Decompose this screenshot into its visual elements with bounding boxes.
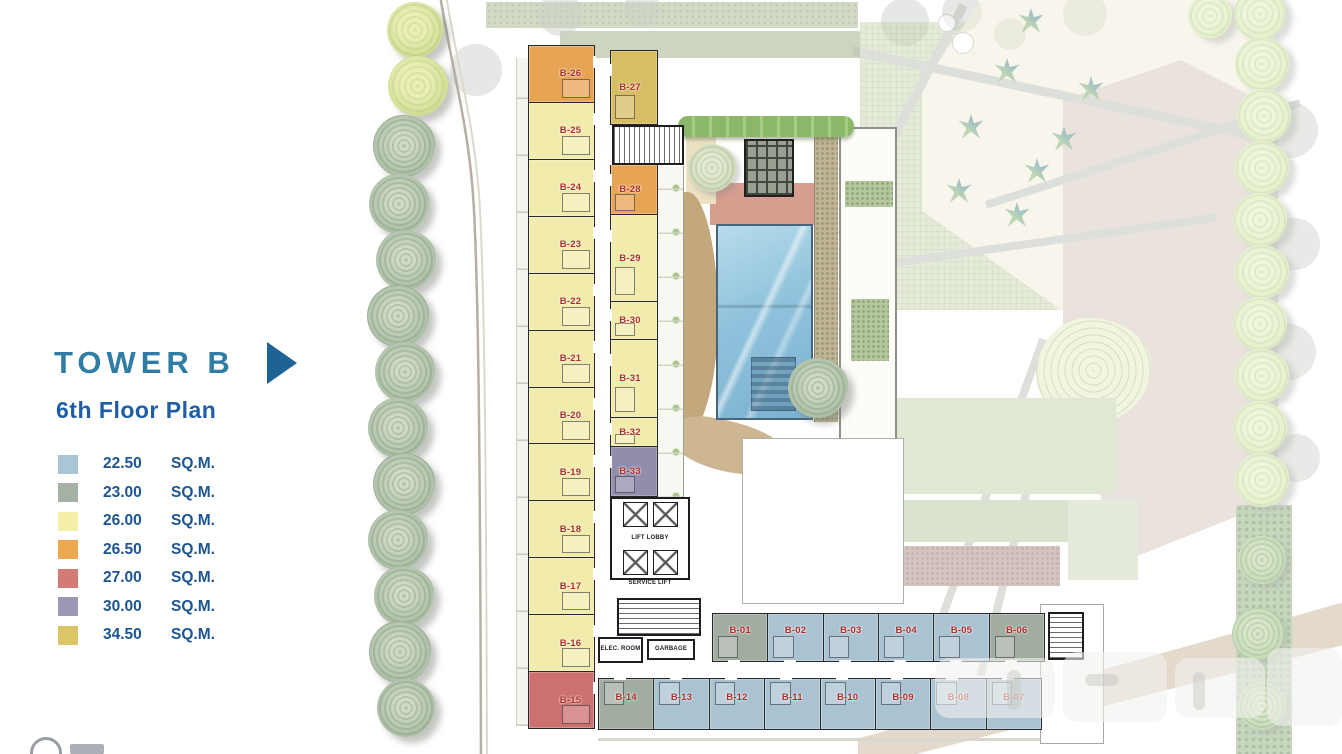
legend-area-value: 22.50: [103, 455, 159, 473]
unit-label: B-17: [560, 581, 581, 592]
legend-swatch-icon: [58, 540, 78, 559]
legend-area-value: 34.50: [103, 626, 159, 644]
unit-B-27: B-27: [610, 50, 658, 125]
legend-swatch-icon: [58, 483, 78, 502]
lift-icon: [623, 550, 648, 575]
unit-label: B-22: [560, 296, 581, 307]
main-stairwell: [617, 598, 701, 636]
unit-label: B-06: [1006, 625, 1027, 636]
unit-label: B-26: [560, 68, 581, 79]
unit-B-33: B-33: [610, 447, 658, 497]
lift-lobby: LIFT LOBBY: [610, 497, 690, 580]
hedge-patch: [851, 299, 889, 361]
unit-label: B-14: [615, 692, 636, 703]
legend-swatch-icon: [58, 626, 78, 645]
unit-B-17: B-17: [528, 558, 595, 615]
unit-label: B-24: [560, 182, 581, 193]
unit-label: B-10: [837, 692, 858, 703]
unit-label: B-19: [560, 467, 581, 478]
legend-swatch-icon: [58, 512, 78, 531]
unit-label: B-13: [671, 692, 692, 703]
south-lower-row: B-14B-13B-12B-11B-10B-09B-08B-07: [598, 678, 1042, 730]
south-stairwell: [1048, 612, 1084, 660]
legend-area-unit: SQ.M.: [171, 484, 215, 502]
unit-label: B-18: [560, 524, 581, 535]
legend-item: 23.00SQ.M.: [58, 483, 304, 503]
east-unit-column: B-27B-28B-29B-30B-31B-32B-33: [610, 50, 658, 497]
unit-B-06: B-06: [990, 613, 1045, 662]
unit-B-04: B-04: [879, 613, 934, 662]
unit-B-14: B-14: [598, 678, 654, 730]
legend-item: 22.50SQ.M.: [58, 454, 304, 474]
unit-B-15: B-15: [528, 672, 595, 729]
unit-label: B-11: [782, 692, 803, 703]
unit-label: B-30: [619, 315, 640, 326]
hedge-row: [678, 116, 854, 137]
unit-B-24: B-24: [528, 160, 595, 217]
lift-icon: [653, 550, 678, 575]
legend-item: 34.50SQ.M.: [58, 625, 304, 645]
service-lift-label: SERVICE LIFT: [610, 580, 690, 587]
legend-swatch-icon: [58, 569, 78, 588]
unit-label: B-20: [560, 410, 581, 421]
legend-item: 26.00SQ.M.: [58, 511, 304, 531]
legend-swatch-icon: [58, 597, 78, 616]
unit-B-32: B-32: [610, 418, 658, 447]
unit-label: B-04: [895, 625, 916, 636]
unit-label: B-12: [726, 692, 747, 703]
unit-label: B-09: [892, 692, 913, 703]
unit-label: B-25: [560, 125, 581, 136]
unit-label: B-29: [619, 253, 640, 264]
unit-B-07: B-07: [987, 678, 1042, 730]
legend-area-value: 23.00: [103, 484, 159, 502]
arrow-right-icon: [267, 342, 297, 384]
unit-label: B-01: [729, 625, 750, 636]
unit-B-03: B-03: [824, 613, 879, 662]
unit-B-31: B-31: [610, 340, 658, 418]
unit-B-02: B-02: [768, 613, 823, 662]
garbage-room-label: GARBAGE: [655, 646, 687, 653]
unit-label: B-27: [619, 82, 640, 93]
unit-B-21: B-21: [528, 331, 595, 388]
unit-label: B-21: [560, 353, 581, 364]
unit-label: B-03: [840, 625, 861, 636]
legend-item: 30.00SQ.M.: [58, 597, 304, 617]
unit-B-01: B-01: [712, 613, 768, 662]
unit-B-16: B-16: [528, 615, 595, 672]
unit-label: B-16: [560, 638, 581, 649]
terrace-outline: [742, 438, 904, 604]
legend-item: 27.00SQ.M.: [58, 568, 304, 588]
area-legend: 22.50SQ.M.23.00SQ.M.26.00SQ.M.26.50SQ.M.…: [54, 454, 304, 645]
legend-area-value: 26.50: [103, 541, 159, 559]
unit-B-10: B-10: [821, 678, 876, 730]
unit-B-08: B-08: [931, 678, 986, 730]
unit-B-05: B-05: [934, 613, 989, 662]
unit-label: B-08: [948, 692, 969, 703]
unit-B-19: B-19: [528, 444, 595, 501]
partial-logo-text: [70, 744, 104, 754]
legend-area-value: 27.00: [103, 569, 159, 587]
legend-area-unit: SQ.M.: [171, 512, 215, 530]
legend-area-unit: SQ.M.: [171, 541, 215, 559]
stairwell: [612, 125, 684, 165]
south-upper-row: B-01B-02B-03B-04B-05B-06: [712, 613, 1045, 662]
west-unit-column: B-26B-25B-24B-23B-22B-21B-20B-19B-18B-17…: [528, 45, 595, 729]
unit-B-11: B-11: [765, 678, 820, 730]
legend-panel: TOWER B 6th Floor Plan 22.50SQ.M.23.00SQ…: [54, 342, 304, 654]
unit-B-29: B-29: [610, 215, 658, 302]
legend-area-unit: SQ.M.: [171, 598, 215, 616]
unit-B-20: B-20: [528, 388, 595, 445]
floor-subtitle: 6th Floor Plan: [56, 397, 304, 424]
lift-icon: [623, 502, 648, 527]
garbage-room: GARBAGE: [647, 639, 695, 660]
hedge-patch: [845, 181, 893, 207]
unit-label: B-07: [1003, 692, 1024, 703]
unit-B-22: B-22: [528, 274, 595, 331]
unit-B-26: B-26: [528, 45, 595, 103]
unit-B-28: B-28: [610, 165, 658, 215]
unit-B-13: B-13: [654, 678, 709, 730]
legend-area-value: 26.00: [103, 512, 159, 530]
unit-label: B-31: [619, 373, 640, 384]
lift-icon: [653, 502, 678, 527]
adjacent-structure: [839, 127, 897, 465]
unit-label: B-32: [619, 427, 640, 438]
unit-B-30: B-30: [610, 302, 658, 340]
unit-label: B-23: [560, 239, 581, 250]
tower-title: TOWER B: [54, 345, 235, 381]
unit-label: B-28: [619, 184, 640, 195]
legend-area-value: 30.00: [103, 598, 159, 616]
unit-label: B-05: [951, 625, 972, 636]
legend-area-unit: SQ.M.: [171, 569, 215, 587]
unit-B-18: B-18: [528, 501, 595, 558]
legend-area-unit: SQ.M.: [171, 626, 215, 644]
electrical-room: ELEC. ROOM: [598, 637, 643, 663]
legend-swatch-icon: [58, 455, 78, 474]
legend-item: 26.50SQ.M.: [58, 540, 304, 560]
lift-lobby-label: LIFT LOBBY: [612, 535, 688, 542]
unit-label: B-33: [619, 466, 640, 477]
unit-label: B-02: [785, 625, 806, 636]
unit-B-09: B-09: [876, 678, 931, 730]
unit-label: B-15: [560, 695, 581, 706]
wing-shadow: [598, 738, 1042, 741]
electrical-room-label: ELEC. ROOM: [600, 646, 640, 653]
balcony-strip-east: [658, 166, 684, 498]
floor-plan-canvas: TOWER B 6th Floor Plan 22.50SQ.M.23.00SQ…: [0, 0, 1342, 754]
legend-area-unit: SQ.M.: [171, 455, 215, 473]
unit-B-25: B-25: [528, 103, 595, 160]
pergola: [744, 139, 794, 197]
unit-B-12: B-12: [710, 678, 765, 730]
unit-B-23: B-23: [528, 217, 595, 274]
